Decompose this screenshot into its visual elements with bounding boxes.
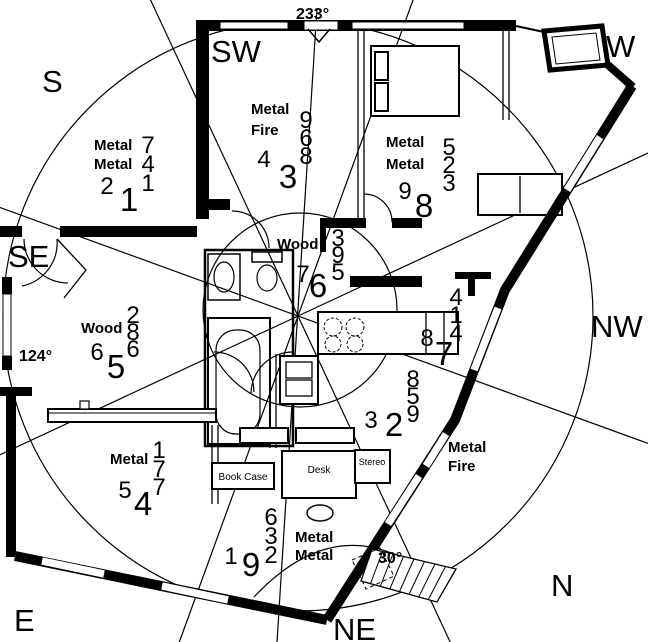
south-room-wall bbox=[60, 226, 197, 237]
element-label: Metal bbox=[94, 156, 132, 173]
entry-degree: 124° bbox=[19, 348, 52, 365]
star-digit: 9 bbox=[398, 178, 411, 205]
star-digit: 2 bbox=[100, 173, 113, 200]
bookcase-label: Book Case bbox=[219, 472, 268, 483]
floor-plan: S SW W SE NW E NE N 233° 124° 30° Metal … bbox=[0, 0, 648, 642]
star-base-digit: 9 bbox=[242, 546, 260, 583]
floor-plan-svg: S SW W SE NW E NE N 233° 124° 30° Metal … bbox=[0, 0, 648, 642]
hall-wall bbox=[350, 276, 422, 287]
star-digit: 5 bbox=[118, 477, 131, 504]
star-digit: 1 bbox=[224, 543, 237, 570]
shelf bbox=[240, 428, 288, 443]
element-label: Metal bbox=[251, 101, 289, 118]
star-digit: 4 bbox=[257, 146, 270, 173]
door-jamb bbox=[468, 279, 475, 296]
compass-s: S bbox=[42, 64, 63, 99]
star-digit: 6 bbox=[126, 336, 139, 363]
element-label: Fire bbox=[251, 122, 279, 139]
star-digit: 7 bbox=[152, 474, 165, 501]
door-jamb bbox=[455, 272, 491, 279]
compass-sw: SW bbox=[211, 34, 262, 69]
star-base-digit: 5 bbox=[107, 348, 125, 385]
element-label: Metal bbox=[295, 529, 333, 546]
star-digit: 1 bbox=[141, 170, 154, 197]
star-base-digit: 4 bbox=[134, 485, 152, 522]
pillow bbox=[375, 83, 388, 111]
dining-table bbox=[48, 409, 216, 422]
element-label: Wood bbox=[81, 320, 122, 337]
compass-n: N bbox=[551, 568, 573, 603]
element-label: Fire bbox=[448, 458, 476, 475]
element-label: Metal bbox=[295, 547, 333, 564]
star-digit: 3 bbox=[364, 407, 377, 434]
pillow bbox=[375, 52, 388, 80]
compass-se: SE bbox=[8, 239, 49, 274]
element-label: Metal bbox=[94, 137, 132, 154]
element-label: Metal bbox=[448, 439, 486, 456]
star-base-digit: 1 bbox=[120, 181, 138, 218]
star-digit: 5 bbox=[331, 259, 344, 286]
compass-ne: NE bbox=[333, 612, 376, 642]
element-label: Metal bbox=[110, 451, 148, 468]
star-digit: 2 bbox=[264, 542, 277, 569]
chair bbox=[307, 505, 333, 521]
star-base-digit: 6 bbox=[309, 267, 327, 304]
stairs-degree: 30° bbox=[378, 550, 402, 567]
star-base-digit: 8 bbox=[415, 187, 433, 224]
star-base-digit: 7 bbox=[435, 335, 453, 372]
star-base-digit: 3 bbox=[279, 158, 297, 195]
compass-w: W bbox=[606, 29, 636, 64]
star-digit: 8 bbox=[420, 325, 433, 352]
element-label: Wood bbox=[277, 236, 318, 253]
compass-nw: NW bbox=[591, 309, 643, 344]
star-digit: 3 bbox=[442, 170, 455, 197]
facing-degree: 233° bbox=[296, 6, 329, 23]
star-base-digit: 2 bbox=[385, 406, 403, 443]
star-digit: 8 bbox=[299, 143, 312, 170]
shelf bbox=[296, 428, 354, 443]
star-digit: 9 bbox=[406, 401, 419, 428]
living-room-wall bbox=[196, 20, 209, 219]
star-digit: 7 bbox=[296, 261, 309, 288]
stereo-label: Stereo bbox=[359, 457, 386, 467]
element-label: Metal bbox=[386, 134, 424, 151]
element-label: Metal bbox=[386, 156, 424, 173]
compass-e: E bbox=[14, 603, 35, 638]
desk-label: Desk bbox=[308, 465, 332, 476]
star-digit: 6 bbox=[90, 339, 103, 366]
